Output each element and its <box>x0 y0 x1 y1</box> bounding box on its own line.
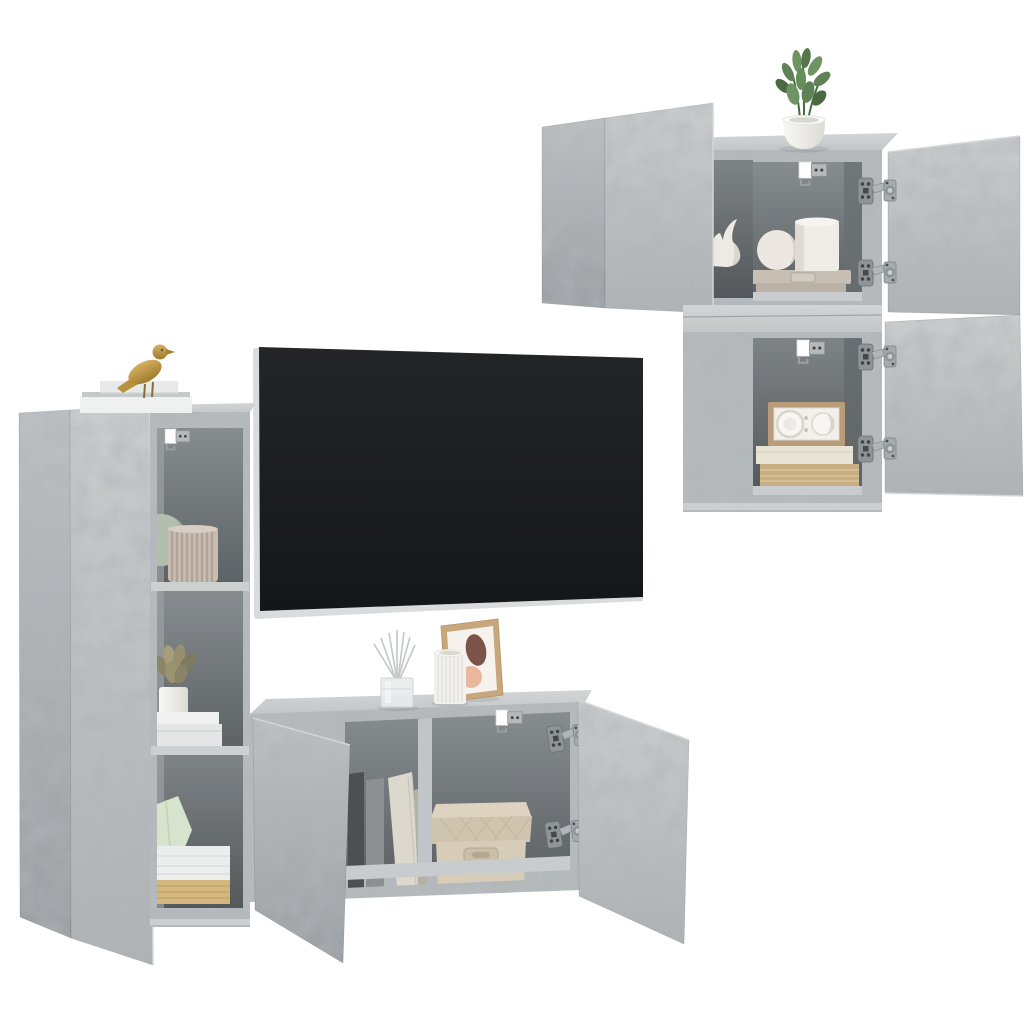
shelf-divider-lower <box>151 746 249 755</box>
bird-eye <box>161 349 163 351</box>
shelf-divider-upper <box>151 582 249 591</box>
fluted-vase <box>434 650 466 705</box>
tall-cabinet-open-door-outer-panel <box>19 410 71 938</box>
book-stack-large <box>80 396 192 413</box>
succulent-pot <box>159 687 188 715</box>
tv-screen <box>259 347 643 611</box>
upper-cube-open-door <box>605 103 713 313</box>
bird-leg <box>152 382 153 397</box>
bird-beak <box>166 349 175 355</box>
bottom-cabinet-right-door <box>578 700 689 944</box>
bottom-cabinet-decor <box>374 619 503 711</box>
top-decor <box>80 345 192 414</box>
retro-radio <box>768 402 845 446</box>
plant-leaves <box>773 47 833 108</box>
cylinder-pot-rim <box>795 218 839 227</box>
box-lid-front <box>430 816 532 844</box>
pleated-vase-rim <box>168 525 218 533</box>
white-book-stack <box>154 846 230 882</box>
scene-svg <box>0 0 1024 1024</box>
upper-cube-floor <box>753 292 862 301</box>
lower-cube-right-door <box>885 315 1023 496</box>
keepsake-box-handle <box>791 273 815 282</box>
tall-cabinet-open-door <box>70 405 153 965</box>
bottom-wall-cabinet <box>248 619 689 963</box>
tall-left-cabinet <box>19 345 256 966</box>
bird-leg <box>144 384 145 398</box>
radio-speaker-inner <box>784 418 797 431</box>
tv <box>253 347 643 619</box>
cylinder-pot-shade <box>795 221 804 271</box>
plant-pot-soil <box>789 117 819 123</box>
lower-cube-bottom-edge <box>683 503 882 510</box>
lower-cube-floor <box>753 486 862 495</box>
book-on-shelf <box>152 724 222 746</box>
box-handle-slot <box>472 852 490 858</box>
vase-opening <box>439 651 461 655</box>
tan-book <box>760 464 859 486</box>
radio-knob <box>804 416 808 420</box>
reed-diffuser <box>374 630 415 707</box>
pleats <box>172 527 212 582</box>
product-photo: Product photo: 4-piece concrete-grey wal… <box>0 0 1024 1024</box>
leaf <box>796 68 806 90</box>
upper-cube-open-door-left-panel <box>542 118 605 308</box>
diffuser-reeds <box>374 630 415 681</box>
vase-flutes <box>438 654 462 703</box>
book-on-shelf <box>155 712 219 725</box>
tv-side-bezel <box>253 347 260 615</box>
cube-junction-band <box>683 305 882 335</box>
bird-head <box>153 345 168 360</box>
bottom-edge-highlight <box>150 919 250 925</box>
diffuser-highlight <box>385 681 391 703</box>
bottom-cabinet-divider <box>418 718 432 873</box>
bottom-cabinet-left-door <box>253 718 350 963</box>
radio-knob <box>804 428 808 432</box>
cream-book <box>756 446 853 464</box>
upper-cube-right-door <box>888 136 1020 315</box>
